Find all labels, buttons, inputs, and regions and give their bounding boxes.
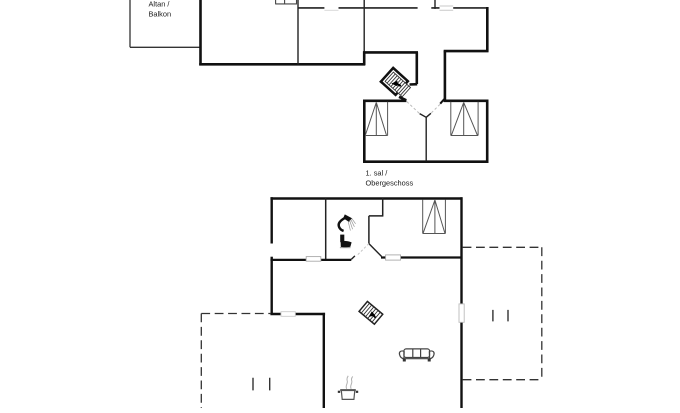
svg-text:Obergeschoss: Obergeschoss xyxy=(366,178,414,187)
svg-text:1. sal /: 1. sal / xyxy=(366,169,389,178)
svg-text:Altan /: Altan / xyxy=(149,0,171,9)
svg-text:Balkon: Balkon xyxy=(149,9,172,18)
